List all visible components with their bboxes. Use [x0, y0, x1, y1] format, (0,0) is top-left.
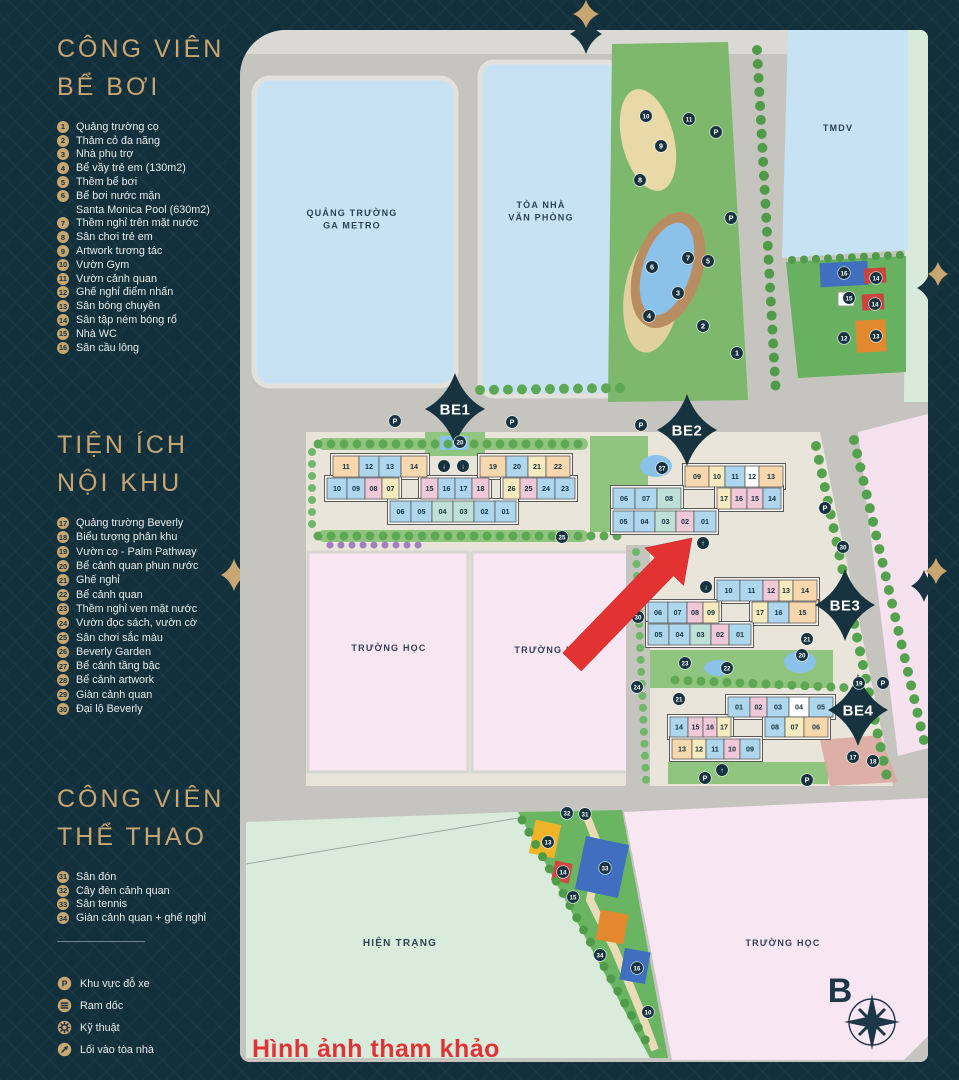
- legend-item-label: Quảng trường Beverly: [76, 517, 183, 529]
- parking-icon: P: [57, 976, 72, 991]
- map-marker: 25: [556, 531, 569, 544]
- svg-text:22: 22: [554, 462, 562, 471]
- map-marker: 24: [631, 681, 644, 694]
- svg-text:10: 10: [643, 113, 650, 120]
- legend-item-label: Bể bơi nước mặn: [76, 190, 160, 202]
- legend-item: 19Vườn cọ - Palm Pathway: [57, 545, 234, 559]
- legend-item: 29Giàn cảnh quan: [57, 688, 234, 702]
- legend-item-label: Santa Monica Pool (630m2): [76, 204, 210, 216]
- legend-divider: [57, 941, 145, 942]
- svg-text:08: 08: [370, 484, 378, 493]
- svg-text:18: 18: [870, 758, 877, 765]
- parking-marker: P: [699, 772, 712, 785]
- svg-text:13: 13: [386, 462, 394, 471]
- legend-number-badge: 12: [57, 286, 69, 298]
- svg-text:12: 12: [767, 586, 775, 595]
- svg-text:13: 13: [767, 472, 775, 481]
- legend-symbol-label: Lối vào tòa nhà: [80, 1044, 154, 1056]
- legend-number-badge: 22: [57, 589, 69, 601]
- legend-symbol-label: Ram dốc: [80, 1000, 123, 1012]
- map-marker: 32: [561, 807, 574, 820]
- svg-text:04: 04: [795, 703, 803, 712]
- legend-symbol-label: Khu vực đỗ xe: [80, 978, 150, 990]
- section-title-line: TIỆN ÍCH: [57, 426, 234, 464]
- svg-text:27: 27: [659, 465, 666, 472]
- svg-text:16: 16: [735, 494, 743, 503]
- svg-text:↓: ↓: [461, 461, 465, 470]
- legend-item: 25Sân chơi sắc màu: [57, 630, 234, 644]
- svg-text:09: 09: [352, 484, 360, 493]
- legend-item: 26Beverly Garden: [57, 645, 234, 659]
- legend-item-label: Ghế nghỉ: [76, 574, 120, 586]
- map-marker: 15: [843, 292, 856, 305]
- parking-marker: P: [801, 774, 814, 787]
- legend-number-badge: 11: [57, 273, 69, 285]
- legend-number-badge: 15: [57, 328, 69, 340]
- legend-number-badge: [57, 204, 69, 216]
- legend-item: 3Nhà phụ trợ: [57, 148, 234, 162]
- svg-text:P: P: [881, 678, 886, 687]
- legend-number-badge: 31: [57, 871, 69, 883]
- map-marker: 20: [796, 649, 809, 662]
- legend-number-badge: 8: [57, 231, 69, 243]
- area-metro-square: [254, 78, 456, 386]
- svg-text:01: 01: [701, 517, 709, 526]
- legend-number-badge: 3: [57, 148, 69, 160]
- legend-number-badge: 5: [57, 176, 69, 188]
- legend-item: 5Thềm bể bơi: [57, 175, 234, 189]
- svg-text:17: 17: [460, 484, 468, 493]
- legend-item-label: Thềm bể bơi: [76, 176, 137, 188]
- legend-number-badge: 21: [57, 574, 69, 586]
- svg-text:9: 9: [659, 141, 663, 150]
- legend-number-badge: 26: [57, 646, 69, 658]
- map-marker: 6: [646, 261, 659, 274]
- parking-marker: P: [710, 126, 723, 139]
- parking-marker: P: [877, 677, 890, 690]
- legend-symbol-item: PKhu vực đỗ xe: [57, 976, 154, 991]
- legend-item: 13Sân bóng chuyền: [57, 299, 234, 313]
- svg-text:04: 04: [641, 517, 649, 526]
- svg-text:11: 11: [731, 472, 739, 481]
- svg-text:15: 15: [692, 723, 700, 732]
- svg-text:14: 14: [801, 586, 809, 595]
- legend-item-label: Bể cảnh tầng bậc: [76, 660, 160, 672]
- svg-text:08: 08: [771, 723, 779, 732]
- svg-text:03: 03: [774, 703, 782, 712]
- legend-item: 9Artwork tương tác: [57, 244, 234, 258]
- area-label: TRƯỜNG HỌC: [351, 642, 426, 653]
- svg-text:03: 03: [662, 517, 670, 526]
- legend-list: 1Quảng trường cọ2Thảm cỏ đa năng3Nhà phụ…: [57, 120, 234, 355]
- legend-number-badge: 13: [57, 300, 69, 312]
- svg-text:02: 02: [481, 507, 489, 516]
- parking-marker: P: [635, 419, 648, 432]
- svg-text:P: P: [639, 420, 644, 429]
- svg-text:15: 15: [751, 494, 759, 503]
- svg-text:1: 1: [735, 348, 739, 357]
- map-marker: 5: [702, 255, 715, 268]
- legend-item: 16Sân cầu lông: [57, 341, 234, 355]
- map-canvas: 1112131410090807151617181920212226252423…: [240, 30, 928, 1062]
- legend-item-label: Vườn Gym: [76, 259, 129, 271]
- svg-text:04: 04: [439, 507, 447, 516]
- legend-sidebar: CÔNG VIÊNBỂ BƠI 1Quảng trường cọ2Thảm cỏ…: [0, 0, 240, 1080]
- svg-text:10: 10: [713, 472, 721, 481]
- legend-item-label: Sân cầu lông: [76, 342, 139, 354]
- area-school-2: [472, 552, 630, 772]
- svg-text:P: P: [703, 773, 708, 782]
- svg-text:15: 15: [799, 608, 807, 617]
- legend-item: 7Thềm nghỉ trên mặt nước: [57, 217, 234, 231]
- area-tmdv: [782, 30, 908, 258]
- svg-text:34: 34: [597, 952, 604, 959]
- svg-text:21: 21: [676, 696, 683, 703]
- svg-text:15: 15: [426, 484, 434, 493]
- map-marker: 17: [847, 751, 860, 764]
- svg-text:05: 05: [655, 630, 663, 639]
- map-marker: ↓: [457, 460, 470, 473]
- svg-text:P: P: [714, 127, 719, 136]
- svg-text:08: 08: [665, 494, 673, 503]
- section-title-line: CÔNG VIÊN: [57, 780, 234, 818]
- svg-text:12: 12: [365, 462, 373, 471]
- map-marker: 3: [672, 287, 685, 300]
- legend-item-label: Nhà phụ trợ: [76, 148, 134, 160]
- svg-text:03: 03: [697, 630, 705, 639]
- legend-item-label: Ghế nghỉ điểm nhấn: [76, 286, 173, 298]
- svg-text:BE2: BE2: [672, 423, 703, 440]
- legend-item: 18Biểu tượng phân khu: [57, 530, 234, 544]
- svg-text:14: 14: [675, 723, 683, 732]
- svg-text:09: 09: [707, 608, 715, 617]
- legend-item-label: Beverly Garden: [76, 646, 151, 658]
- sparkle-star-icon: [912, 262, 959, 308]
- section-title-line: CÔNG VIÊN: [57, 30, 234, 68]
- section-title: CÔNG VIÊNBỂ BƠI: [57, 30, 234, 106]
- svg-text:23: 23: [682, 660, 689, 667]
- legend-item: 17Quảng trường Beverly: [57, 516, 234, 530]
- legend-number-badge: 24: [57, 617, 69, 629]
- legend-item: 24Vườn đọc sách, vườn cờ: [57, 616, 234, 630]
- legend-item: 34Giàn cảnh quan + ghế nghỉ: [57, 911, 234, 925]
- section-title: CÔNG VIÊNTHỂ THAO: [57, 780, 234, 856]
- svg-text:21: 21: [804, 636, 811, 643]
- legend-number-badge: 20: [57, 560, 69, 572]
- svg-text:14: 14: [873, 275, 880, 282]
- svg-text:25: 25: [559, 534, 566, 541]
- sparkle-star-icon: [565, 0, 607, 54]
- legend-section-pool-park: CÔNG VIÊNBỂ BƠI 1Quảng trường cọ2Thảm cỏ…: [57, 30, 234, 355]
- svg-text:↑: ↑: [720, 765, 724, 774]
- svg-text:P: P: [805, 775, 810, 784]
- legend-symbol-label: Kỹ thuật: [80, 1022, 120, 1034]
- svg-text:03: 03: [460, 507, 468, 516]
- legend-section-sports-park: CÔNG VIÊNTHỂ THAO 31Sân đón32Cây đèn cản…: [57, 780, 234, 925]
- svg-text:P: P: [393, 416, 398, 425]
- legend-number-badge: 14: [57, 314, 69, 326]
- parking-marker: P: [819, 502, 832, 515]
- svg-text:BE1: BE1: [440, 402, 471, 419]
- legend-list: 17Quảng trường Beverly18Biểu tượng phân …: [57, 516, 234, 716]
- svg-text:17: 17: [720, 723, 728, 732]
- legend-item-label: Sân tập ném bóng rổ: [76, 314, 177, 326]
- legend-number-badge: 2: [57, 135, 69, 147]
- legend-number-badge: 34: [57, 912, 69, 924]
- legend-item-label: Cây đèn cảnh quan: [76, 885, 170, 897]
- svg-text:13: 13: [873, 333, 880, 340]
- legend-number-badge: 25: [57, 632, 69, 644]
- svg-text:06: 06: [812, 723, 820, 732]
- map-marker: 7: [682, 252, 695, 265]
- svg-text:21: 21: [533, 462, 541, 471]
- legend-number-badge: 4: [57, 162, 69, 174]
- svg-text:11: 11: [342, 462, 350, 471]
- legend-item-label: Sân chơi sắc màu: [76, 632, 163, 644]
- legend-symbol-item: Ram dốc: [57, 998, 154, 1013]
- map-marker: 33: [599, 862, 612, 875]
- legend-item: 11Vườn cảnh quan: [57, 272, 234, 286]
- legend-item-label: Vườn cảnh quan: [76, 273, 157, 285]
- legend-item: 20Bể cảnh quan phun nước: [57, 559, 234, 573]
- map-marker: 13: [870, 330, 883, 343]
- map-marker: ↑: [697, 537, 710, 550]
- svg-text:20: 20: [799, 652, 806, 659]
- legend-symbol-item: Kỹ thuật: [57, 1020, 154, 1035]
- svg-text:3: 3: [676, 288, 680, 297]
- svg-text:05: 05: [817, 703, 825, 712]
- legend-item: 1Quảng trường cọ: [57, 120, 234, 134]
- legend-item-label: Thềm nghỉ ven mặt nước: [76, 603, 197, 615]
- legend-item: 21Ghế nghỉ: [57, 573, 234, 587]
- section-title-line: THỂ THAO: [57, 818, 234, 856]
- svg-text:13: 13: [782, 586, 790, 595]
- svg-text:09: 09: [746, 745, 754, 754]
- legend-item-label: Artwork tương tác: [76, 245, 162, 257]
- svg-text:P: P: [62, 979, 68, 989]
- compass-north-label: B: [828, 972, 853, 1010]
- svg-text:07: 07: [387, 484, 395, 493]
- map-marker: ↓: [700, 581, 713, 594]
- area-label: TMDV: [823, 123, 853, 133]
- svg-text:19: 19: [856, 680, 863, 687]
- map-marker: 31: [579, 808, 592, 821]
- legend-item: 30Đại lộ Beverly: [57, 702, 234, 716]
- map-marker: 4: [643, 310, 656, 323]
- area-office-tower: [480, 62, 620, 396]
- legend-item-label: Sân tennis: [76, 898, 127, 910]
- svg-text:16: 16: [841, 270, 848, 277]
- section-title: TIỆN ÍCHNỘI KHU: [57, 426, 234, 502]
- section-title-line: BỂ BƠI: [57, 68, 234, 106]
- map-marker: 8: [634, 174, 647, 187]
- svg-text:22: 22: [724, 665, 731, 672]
- legend-item-label: Vườn đọc sách, vườn cờ: [76, 617, 197, 629]
- legend-item: 27Bể cảnh tầng bậc: [57, 659, 234, 673]
- map-marker: 19: [853, 677, 866, 690]
- legend-item: 4Bể vầy trẻ em (130m2): [57, 161, 234, 175]
- map-terrain: [240, 30, 928, 1062]
- area-school-1: [308, 552, 468, 772]
- svg-text:10: 10: [725, 586, 733, 595]
- svg-text:08: 08: [691, 608, 699, 617]
- map-marker: 10: [640, 110, 653, 123]
- svg-text:31: 31: [582, 811, 589, 818]
- svg-text:5: 5: [706, 256, 710, 265]
- svg-text:↑: ↑: [701, 538, 705, 547]
- map-marker: ↓: [438, 460, 451, 473]
- svg-text:01: 01: [735, 703, 743, 712]
- legend-number-badge: 16: [57, 342, 69, 354]
- svg-text:18: 18: [477, 484, 485, 493]
- legend-item-label: Đại lộ Beverly: [76, 703, 143, 715]
- svg-text:17: 17: [850, 754, 857, 761]
- map-marker: 27: [656, 462, 669, 475]
- map-marker: 23: [679, 657, 692, 670]
- legend-number-badge: 30: [57, 703, 69, 715]
- legend-item-label: Sân bóng chuyền: [76, 300, 160, 312]
- map-marker: 22: [721, 662, 734, 675]
- map-marker: 18: [867, 755, 880, 768]
- legend-number-badge: 1: [57, 121, 69, 133]
- svg-text:06: 06: [397, 507, 405, 516]
- area-label: HIỆN TRẠNG: [363, 936, 437, 949]
- legend-item: 28Bể cảnh artwork: [57, 673, 234, 687]
- svg-text:05: 05: [620, 517, 628, 526]
- svg-text:12: 12: [695, 745, 703, 754]
- svg-text:4: 4: [647, 311, 651, 320]
- map-marker: 15: [567, 891, 580, 904]
- master-plan-map: 1112131410090807151617181920212226252423…: [240, 30, 928, 1062]
- legend-item-label: Biểu tượng phân khu: [76, 531, 177, 543]
- svg-text:P: P: [823, 503, 828, 512]
- svg-text:02: 02: [681, 517, 689, 526]
- svg-text:15: 15: [570, 894, 577, 901]
- area-label: TRƯỜNG HỌC: [745, 937, 820, 948]
- legend-item: 22Bể cảnh quan: [57, 587, 234, 601]
- legend-item-label: Bể cảnh quan phun nước: [76, 560, 198, 572]
- legend-number-badge: 7: [57, 217, 69, 229]
- section-title-line: NỘI KHU: [57, 464, 234, 502]
- svg-text:30: 30: [635, 614, 642, 621]
- legend-item-label: Quảng trường cọ: [76, 121, 159, 133]
- svg-text:26: 26: [508, 484, 516, 493]
- svg-text:24: 24: [634, 684, 641, 691]
- legend-item: 14Sân tập ném bóng rổ: [57, 313, 234, 327]
- legend-item: Santa Monica Pool (630m2): [57, 203, 234, 217]
- legend-section-internal-amenities: TIỆN ÍCHNỘI KHU 17Quảng trường Beverly18…: [57, 426, 234, 716]
- svg-text:04: 04: [676, 630, 684, 639]
- legend-number-badge: 29: [57, 689, 69, 701]
- svg-text:↓: ↓: [442, 461, 446, 470]
- legend-item: 8Sân chơi trẻ em: [57, 230, 234, 244]
- svg-text:14: 14: [872, 301, 879, 308]
- svg-text:11: 11: [686, 116, 693, 123]
- legend-item-label: Thềm nghỉ trên mặt nước: [76, 217, 198, 229]
- svg-text:20: 20: [457, 439, 464, 446]
- svg-text:02: 02: [716, 630, 724, 639]
- map-marker: 20: [454, 436, 467, 449]
- svg-text:17: 17: [720, 494, 728, 503]
- map-marker: 2: [697, 320, 710, 333]
- legend-symbols: PKhu vực đỗ xeRam dốcKỹ thuậtLối vào tòa…: [57, 976, 154, 1064]
- legend-item-label: Vườn cọ - Palm Pathway: [76, 546, 197, 558]
- svg-text:P: P: [510, 417, 515, 426]
- map-marker: 1: [731, 347, 744, 360]
- svg-text:09: 09: [693, 472, 701, 481]
- parking-marker: P: [506, 416, 519, 429]
- svg-text:14: 14: [560, 869, 567, 876]
- svg-text:P: P: [729, 213, 734, 222]
- map-marker: 9: [655, 140, 668, 153]
- svg-text:01: 01: [736, 630, 744, 639]
- map-marker: 21: [673, 693, 686, 706]
- legend-item-label: Bể cảnh artwork: [76, 674, 154, 686]
- legend-number-badge: 32: [57, 885, 69, 897]
- svg-text:20: 20: [513, 462, 521, 471]
- svg-text:BE3: BE3: [830, 598, 861, 615]
- legend-number-badge: 18: [57, 531, 69, 543]
- svg-text:16: 16: [634, 965, 641, 972]
- svg-text:7: 7: [686, 253, 690, 262]
- parking-marker: P: [725, 212, 738, 225]
- legend-item: 31Sân đón: [57, 870, 234, 884]
- svg-text:32: 32: [564, 810, 571, 817]
- svg-text:2: 2: [701, 321, 705, 330]
- svg-text:16: 16: [706, 723, 714, 732]
- legend-item: 32Cây đèn cảnh quan: [57, 884, 234, 898]
- svg-text:01: 01: [502, 507, 510, 516]
- legend-item: 23Thềm nghỉ ven mặt nước: [57, 602, 234, 616]
- map-marker: 34: [594, 949, 607, 962]
- map-marker: 14: [870, 272, 883, 285]
- legend-item: 33Sân tennis: [57, 898, 234, 912]
- svg-text:05: 05: [418, 507, 426, 516]
- legend-item-label: Giàn cảnh quan: [76, 689, 152, 701]
- svg-text:10: 10: [728, 745, 736, 754]
- parking-marker: P: [389, 415, 402, 428]
- svg-text:02: 02: [755, 703, 763, 712]
- legend-number-badge: 6: [57, 190, 69, 202]
- map-marker: ↑: [716, 764, 729, 777]
- svg-text:6: 6: [650, 262, 654, 271]
- legend-number-badge: 10: [57, 259, 69, 271]
- svg-text:23: 23: [561, 484, 569, 493]
- map-marker: 10: [642, 1006, 655, 1019]
- reference-note: Hình ảnh tham khảo: [252, 1035, 500, 1064]
- legend-item-label: Bể cảnh quan: [76, 589, 143, 601]
- svg-text:06: 06: [620, 494, 628, 503]
- svg-text:10: 10: [645, 1009, 652, 1016]
- legend-item-label: Nhà WC: [76, 328, 117, 340]
- map-marker: 14: [869, 298, 882, 311]
- legend-symbol-item: Lối vào tòa nhà: [57, 1042, 154, 1057]
- svg-text:13: 13: [545, 839, 552, 846]
- map-marker: 14: [557, 866, 570, 879]
- map-marker: 11: [683, 113, 696, 126]
- svg-text:07: 07: [674, 608, 682, 617]
- gear-icon: [57, 1020, 72, 1035]
- legend-item-label: Bể vầy trẻ em (130m2): [76, 162, 186, 174]
- svg-text:14: 14: [410, 462, 418, 471]
- svg-text:16: 16: [775, 608, 783, 617]
- svg-text:BE4: BE4: [843, 703, 874, 720]
- svg-text:17: 17: [756, 608, 764, 617]
- svg-text:24: 24: [542, 484, 550, 493]
- svg-text:14: 14: [768, 494, 776, 503]
- svg-text:30: 30: [840, 544, 847, 551]
- svg-text:13: 13: [678, 745, 686, 754]
